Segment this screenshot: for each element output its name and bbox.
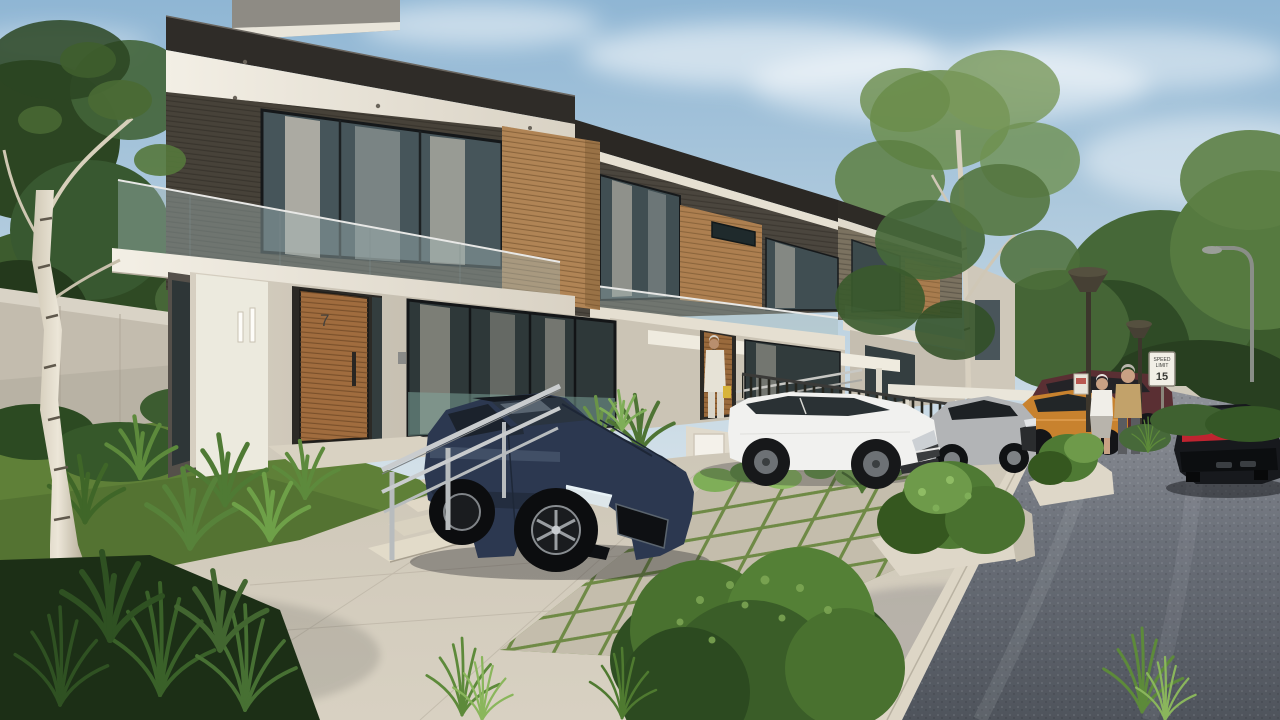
- speed-sign-value: 15: [1156, 371, 1168, 383]
- unit-7-door-number: 7: [320, 311, 329, 330]
- community-board: [1074, 374, 1088, 394]
- entrance-pillar: [196, 274, 268, 478]
- scene-canvas: 6: [0, 0, 1280, 720]
- vehicle-white-sedan: [700, 392, 940, 489]
- front-door-unit-7: 7: [300, 290, 368, 442]
- speed-sign-line2: LIMIT: [1156, 363, 1169, 369]
- intercom-panel: [398, 352, 406, 364]
- architectural-rendering: 6: [0, 0, 1280, 720]
- yellow-bag: [723, 386, 731, 398]
